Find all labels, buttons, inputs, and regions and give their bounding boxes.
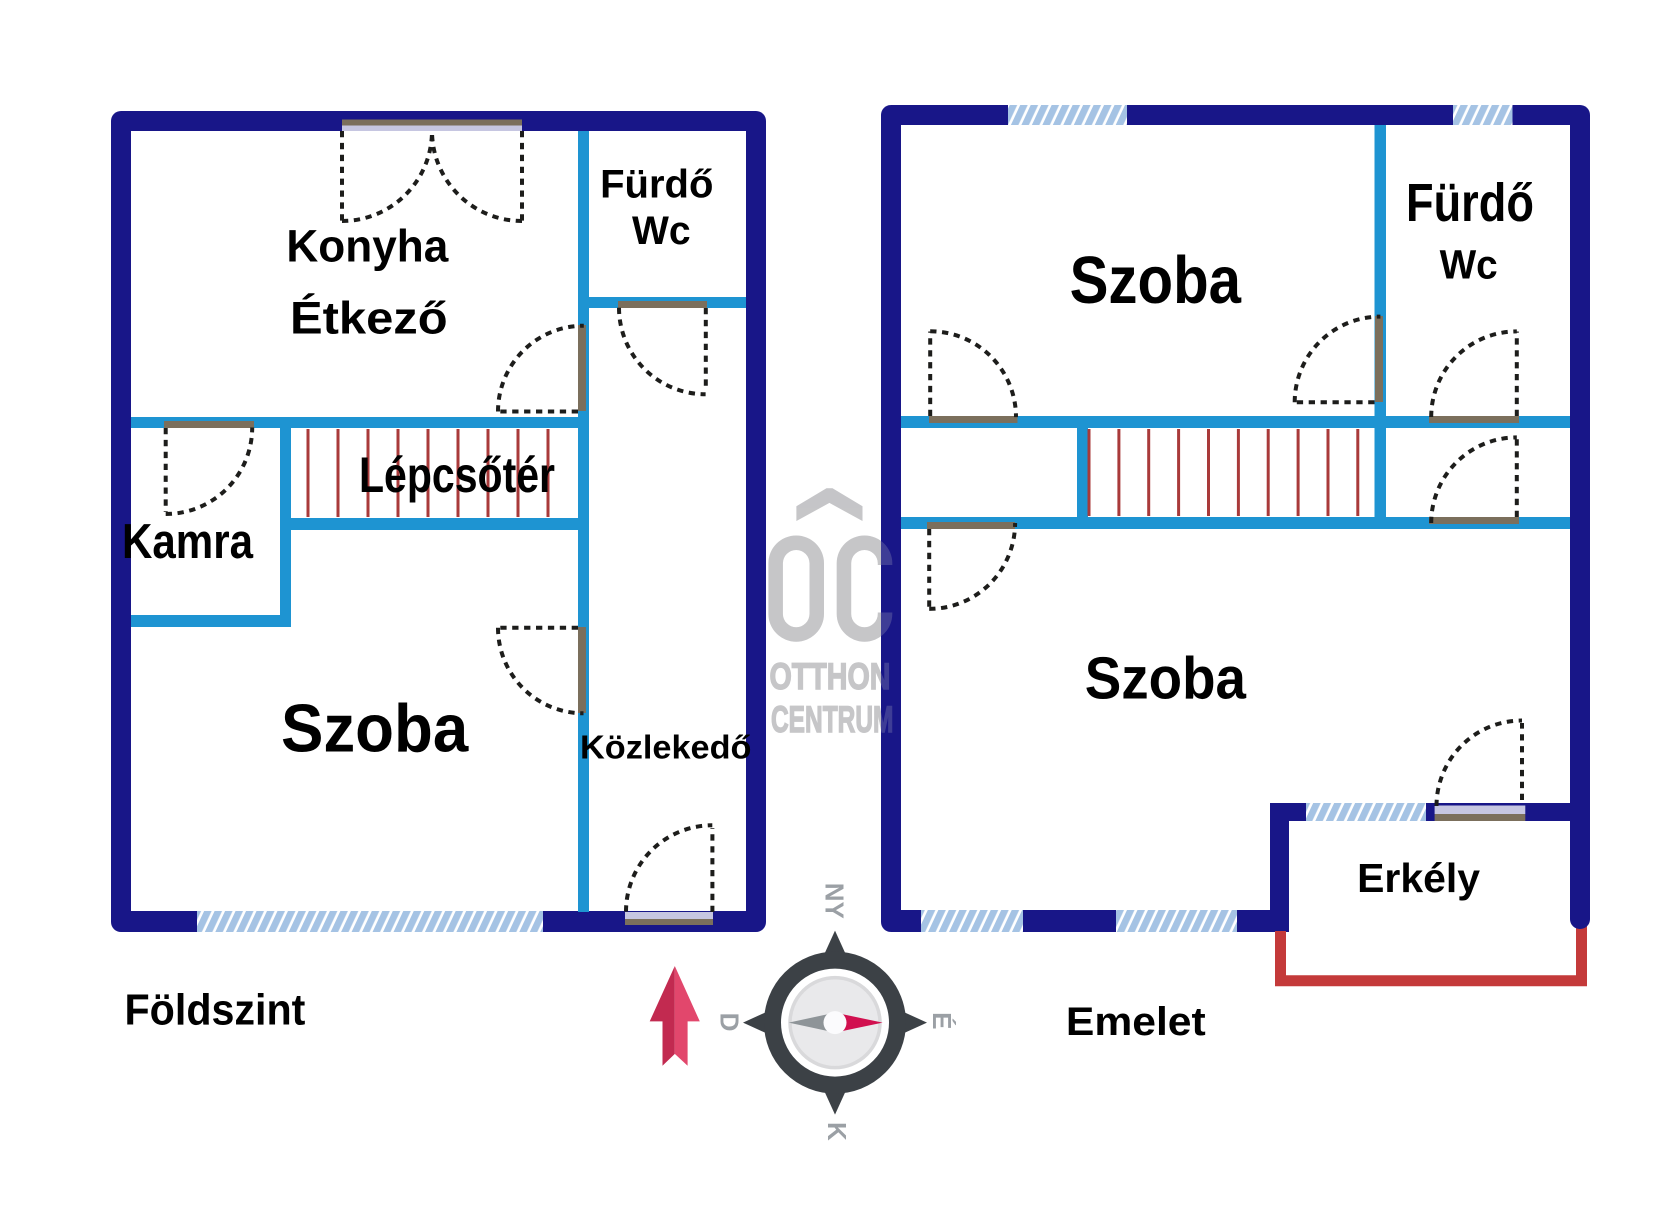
svg-text:Emelet: Emelet <box>1066 1000 1206 1044</box>
svg-text:Szoba: Szoba <box>281 691 469 767</box>
svg-text:Közlekedő: Közlekedő <box>580 728 752 765</box>
svg-text:D: D <box>714 1013 744 1032</box>
svg-text:K: K <box>822 1122 852 1141</box>
svg-text:Wc: Wc <box>1440 242 1498 288</box>
svg-text:Szoba: Szoba <box>1070 243 1242 318</box>
svg-text:É: É <box>927 1012 957 1029</box>
svg-text:Lépcsőtér: Lépcsőtér <box>359 447 555 503</box>
svg-text:Kamra: Kamra <box>122 515 254 569</box>
svg-text:Erkély: Erkély <box>1357 855 1480 901</box>
svg-text:Fürdő: Fürdő <box>1406 174 1534 233</box>
svg-text:NY: NY <box>820 883 850 919</box>
svg-text:Wc: Wc <box>632 209 691 253</box>
svg-text:Földszint: Földszint <box>125 986 306 1034</box>
svg-text:Konyha: Konyha <box>286 220 449 271</box>
svg-text:Étkező: Étkező <box>290 293 448 344</box>
svg-text:Szoba: Szoba <box>1085 646 1247 712</box>
svg-text:Fürdő: Fürdő <box>600 163 713 207</box>
